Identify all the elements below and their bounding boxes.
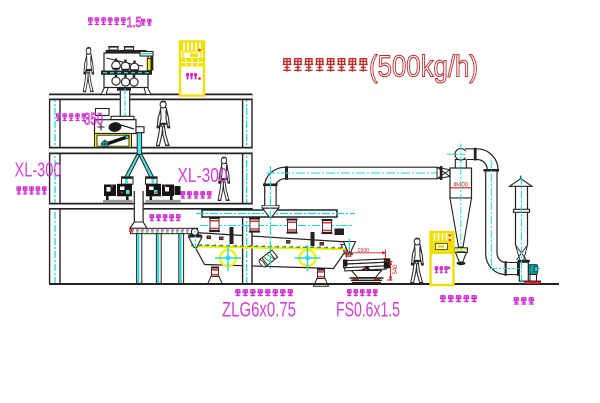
svg-text:350: 350 (84, 111, 103, 129)
svg-text:XL-300: XL-300 (15, 159, 62, 182)
svg-text:1500: 1500 (358, 248, 370, 254)
svg-text:FS0.6x1.5: FS0.6x1.5 (336, 299, 400, 322)
svg-text:(500kg/h): (500kg/h) (369, 50, 478, 84)
svg-text:XL-300: XL-300 (178, 165, 228, 187)
svg-text:ZLG6x0.75: ZLG6x0.75 (222, 299, 296, 322)
svg-text:1.5: 1.5 (127, 15, 142, 31)
svg-text:540: 540 (393, 264, 399, 275)
